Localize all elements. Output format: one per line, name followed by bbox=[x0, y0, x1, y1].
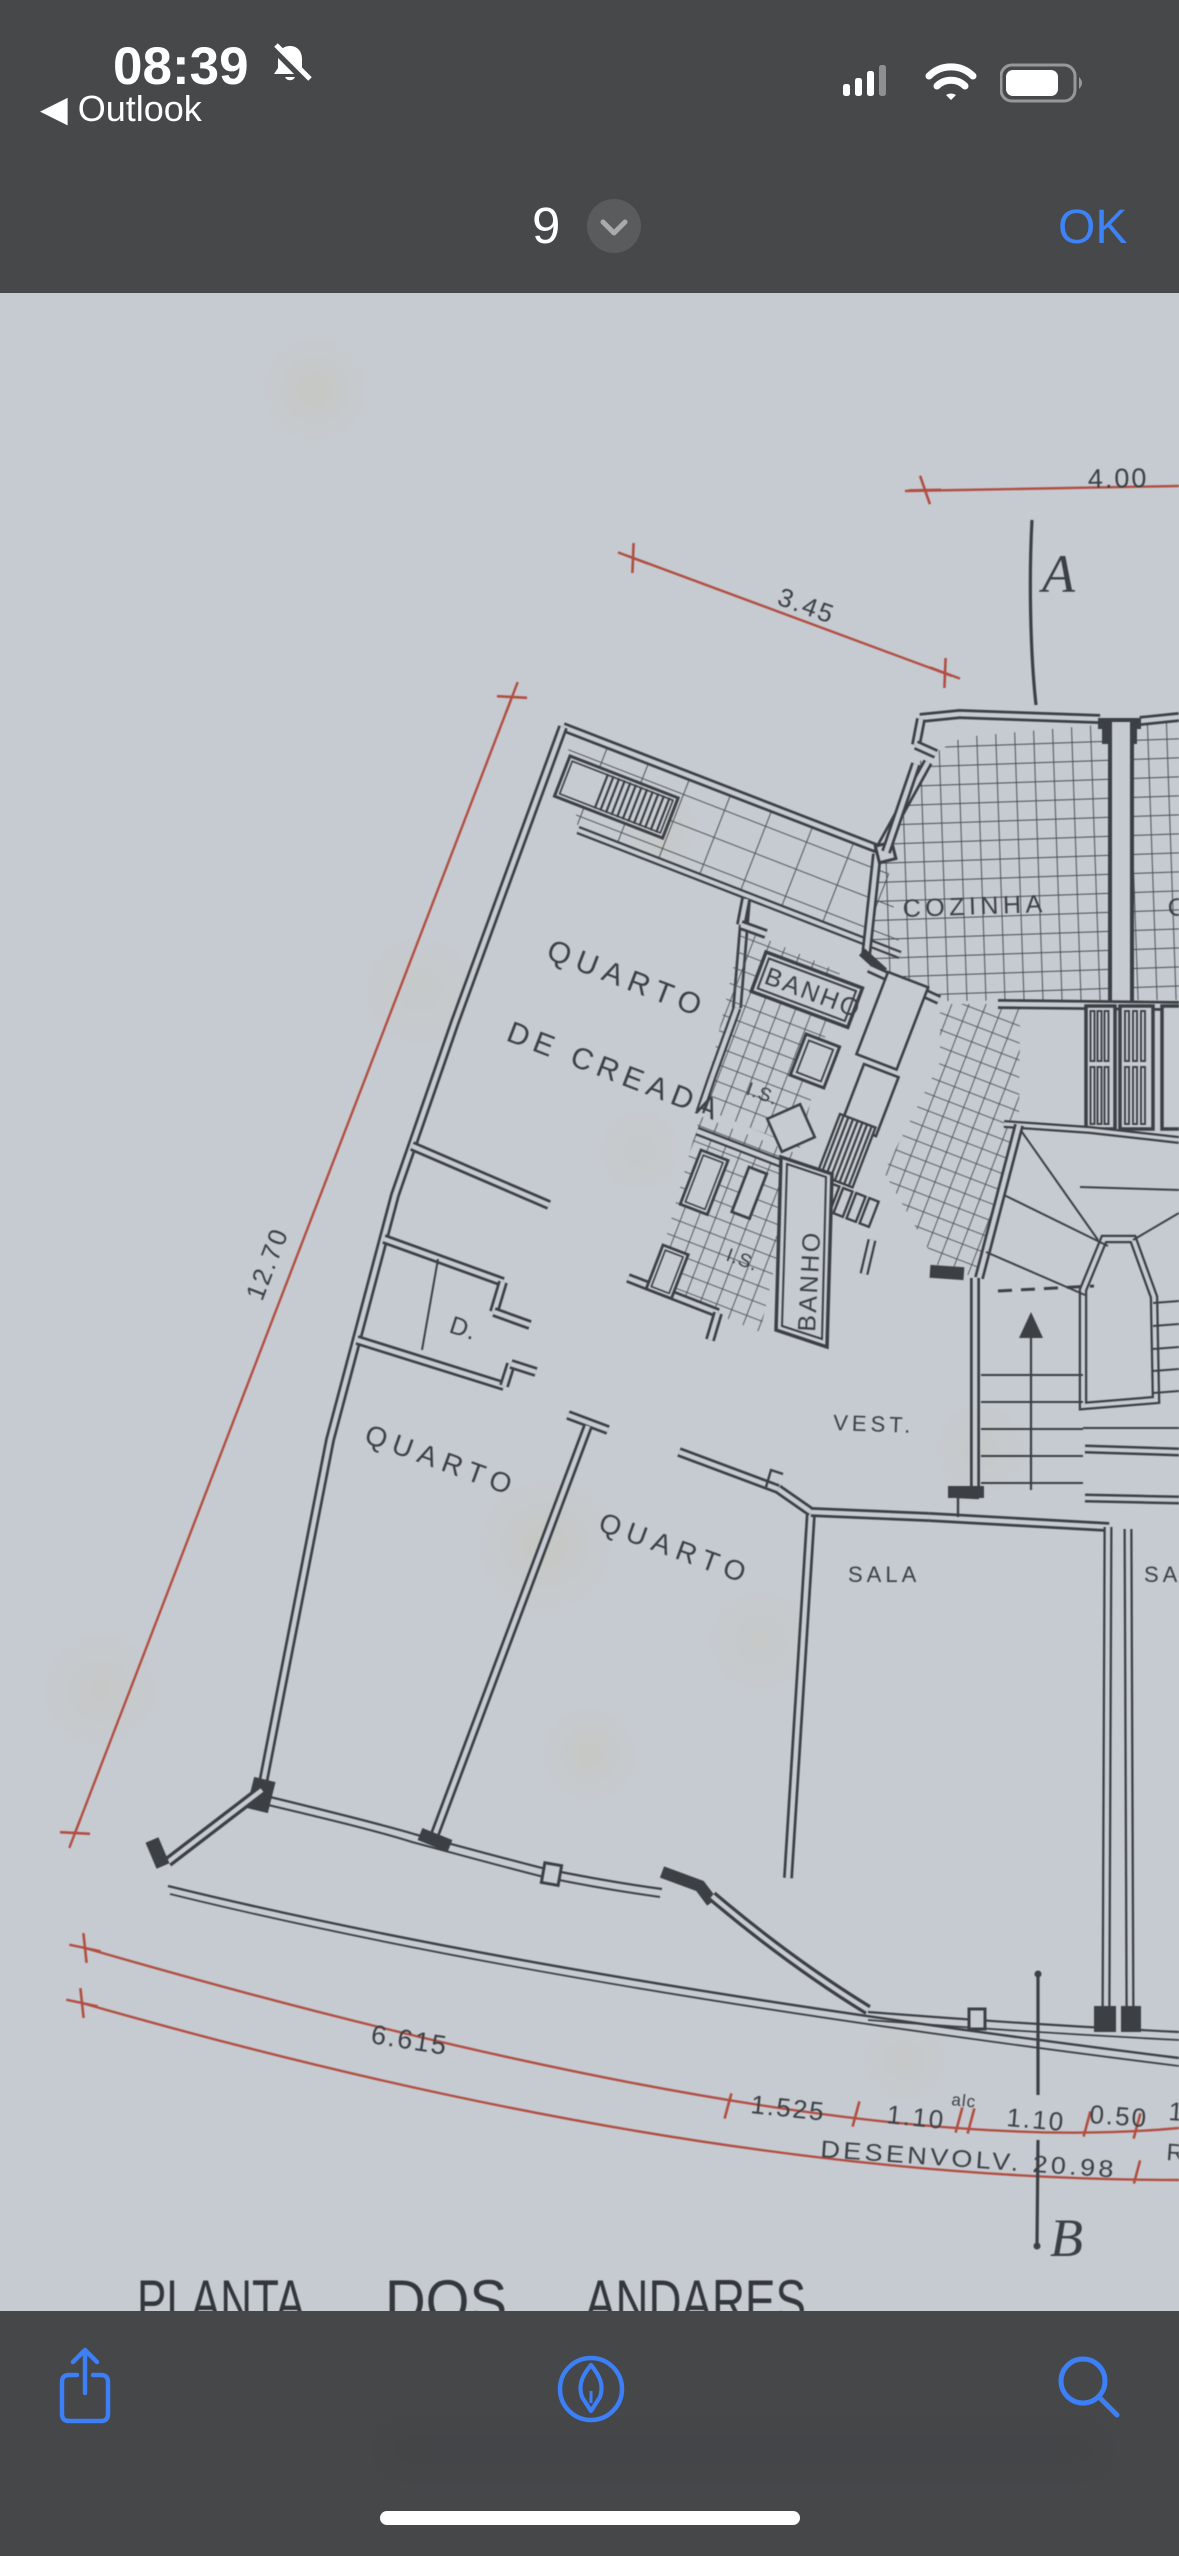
svg-text:4.00: 4.00 bbox=[1088, 463, 1149, 494]
svg-text:alc: alc bbox=[951, 2090, 978, 2111]
svg-text:1.10: 1.10 bbox=[1005, 2102, 1066, 2137]
svg-text:1.: 1. bbox=[1168, 2096, 1179, 2128]
svg-text:SALA: SALA bbox=[1144, 1562, 1179, 1587]
svg-text:0.50: 0.50 bbox=[1089, 2099, 1150, 2133]
svg-text:SALA: SALA bbox=[848, 1562, 920, 1587]
svg-text:VEST.: VEST. bbox=[833, 1410, 915, 1438]
svg-text:B: B bbox=[1050, 2208, 1083, 2268]
svg-text:A: A bbox=[1039, 544, 1076, 604]
svg-text:COZINHA: COZINHA bbox=[902, 890, 1047, 923]
svg-text:CO: CO bbox=[1167, 892, 1179, 922]
svg-text:1.10: 1.10 bbox=[885, 2099, 946, 2135]
svg-text:BANHO: BANHO bbox=[793, 1230, 826, 1333]
svg-text:R: R bbox=[1166, 2139, 1179, 2167]
